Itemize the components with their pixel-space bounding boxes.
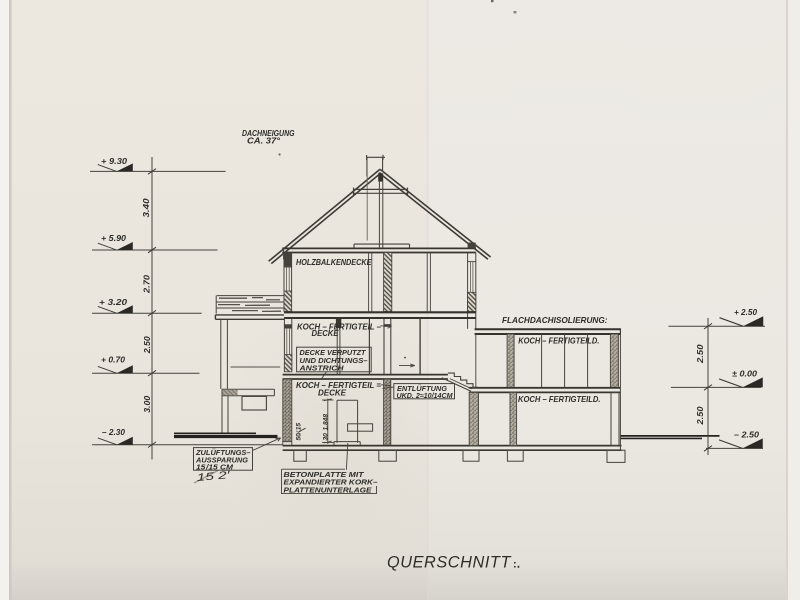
svg-text:KOCH – FERTIGTEILD.: KOCH – FERTIGTEILD. (518, 336, 599, 345)
svg-text::․: :․ (513, 559, 520, 571)
svg-text:UKD. 2≈10/14CM: UKD. 2≈10/14CM (397, 391, 454, 400)
svg-text:15 2′: 15 2′ (196, 469, 231, 484)
svg-text:+ 5.90: + 5.90 (101, 233, 126, 243)
svg-text:2.50: 2.50 (696, 406, 705, 426)
svg-text:50⁄.15: 50⁄.15 (296, 423, 303, 441)
svg-text:ZULÜFTUNGS–: ZULÜFTUNGS– (195, 448, 251, 457)
svg-text:+ 9.30: + 9.30 (101, 156, 127, 166)
svg-text:KOCH – FERTIGTEILD.: KOCH – FERTIGTEILD. (518, 395, 601, 404)
svg-text:AUSSPARUNG: AUSSPARUNG (195, 457, 249, 464)
svg-text:PLATTENUNTERLAGE: PLATTENUNTERLAGE (284, 486, 372, 495)
svg-text:ANSTRICH: ANSTRICH (298, 364, 344, 373)
svg-text:+ 2.50: + 2.50 (734, 307, 757, 317)
svg-text:2.50: 2.50 (696, 344, 705, 364)
svg-text:+ 3.20: + 3.20 (99, 297, 127, 307)
svg-text:3.40: 3.40 (142, 198, 151, 218)
svg-text:KOCH – FERTIGTEIL –: KOCH – FERTIGTEIL – (297, 321, 381, 331)
svg-text:QUERSCHNITT: QUERSCHNITT (387, 553, 512, 572)
svg-text:2.70: 2.70 (143, 274, 152, 294)
svg-text:HOLZBALKENDECKE: HOLZBALKENDECKE (296, 257, 372, 267)
svg-text:± 0.00: ± 0.00 (732, 369, 757, 379)
svg-text:DECKE: DECKE (318, 388, 346, 398)
svg-text:FLACHDACHISOLIERUNG:: FLACHDACHISOLIERUNG: (502, 316, 608, 325)
svg-text:30: 30 (322, 433, 329, 441)
svg-text:– 2.30: – 2.30 (102, 427, 125, 437)
svg-text:3.00: 3.00 (143, 395, 152, 412)
svg-text:– 2.50: – 2.50 (734, 430, 759, 440)
svg-text:CA. 37°: CA. 37° (247, 137, 281, 146)
svg-text:2.50: 2.50 (143, 336, 152, 355)
svg-text:+ 0.70: + 0.70 (101, 355, 125, 365)
svg-text:DECKE: DECKE (312, 328, 339, 338)
svg-text:1.848: 1.848 (322, 414, 329, 431)
